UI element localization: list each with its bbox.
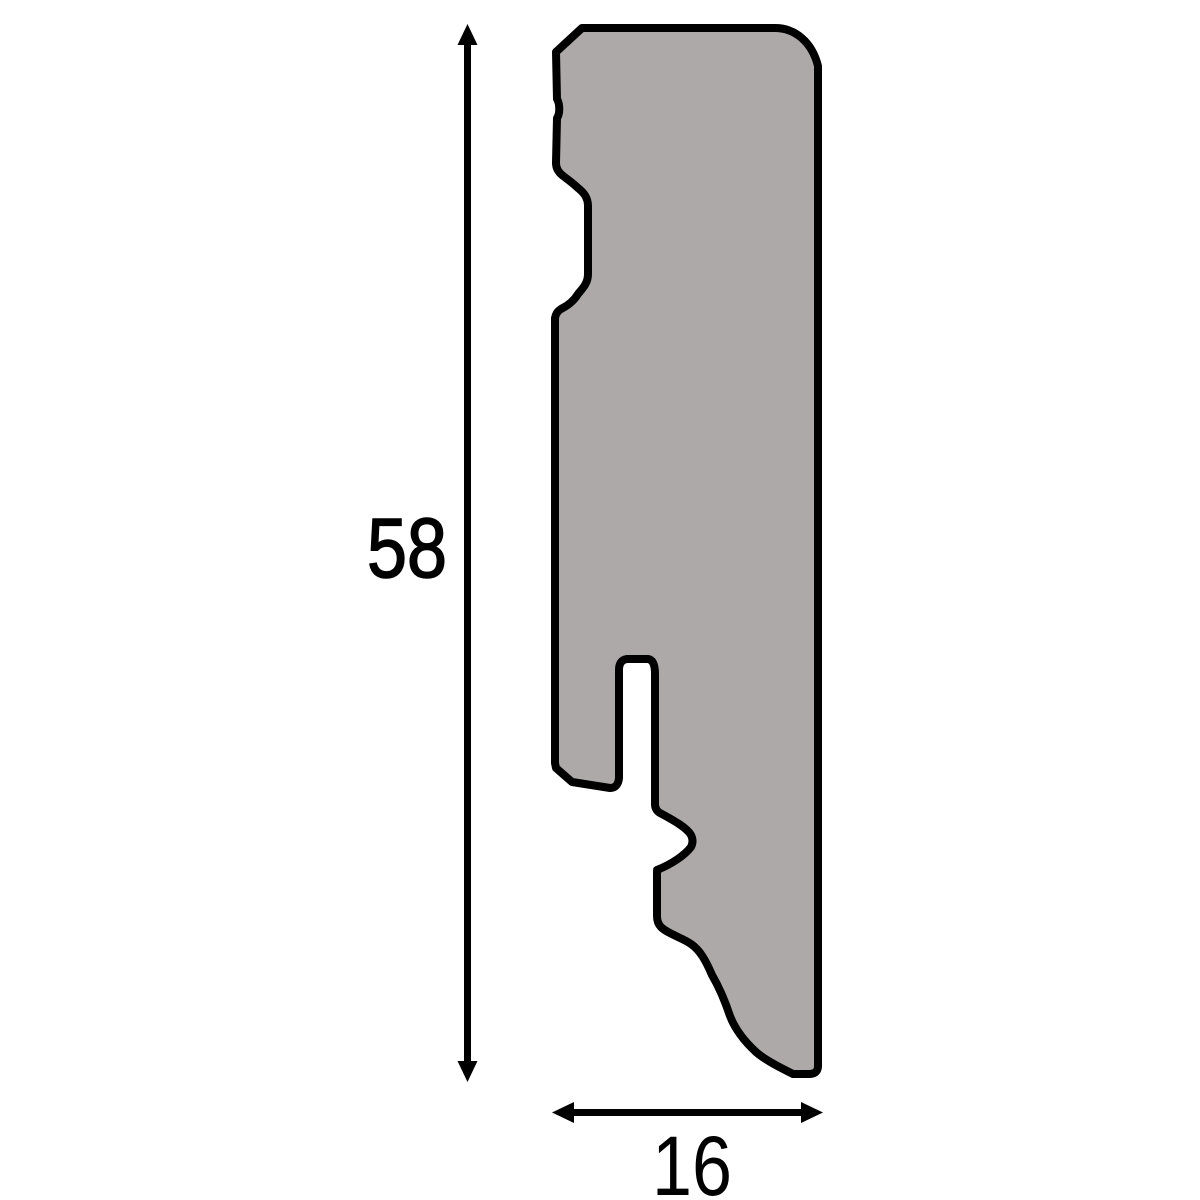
svg-text:58: 58: [367, 501, 447, 595]
svg-text:16: 16: [652, 1119, 732, 1200]
